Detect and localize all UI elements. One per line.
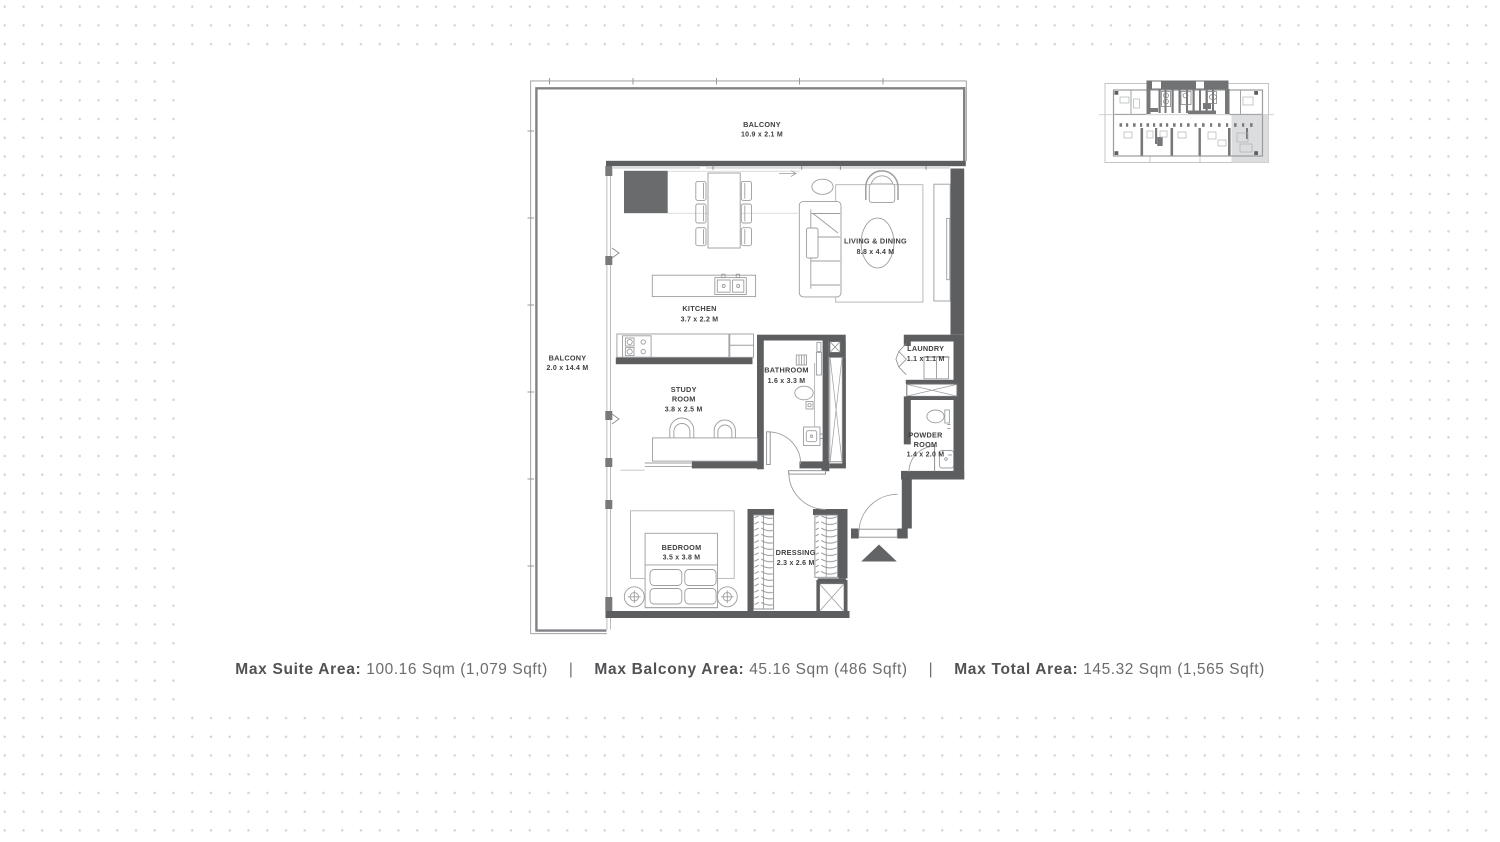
svg-text:BALCONY: BALCONY <box>549 354 587 363</box>
svg-text:ROOM: ROOM <box>914 440 938 449</box>
svg-text:8.8 x 4.4 M: 8.8 x 4.4 M <box>857 249 895 256</box>
svg-text:3.8 x 2.5 M: 3.8 x 2.5 M <box>665 406 703 413</box>
svg-text:1.6 x 3.3 M: 1.6 x 3.3 M <box>768 378 806 385</box>
svg-text:1.1 x 1.1 M: 1.1 x 1.1 M <box>907 356 945 363</box>
svg-text:LAUNDRY: LAUNDRY <box>907 344 944 353</box>
svg-text:STUDY: STUDY <box>671 385 697 394</box>
svg-text:3.7 x 2.2 M: 3.7 x 2.2 M <box>681 316 719 323</box>
svg-text:10.9 x 2.1 M: 10.9 x 2.1 M <box>741 132 783 139</box>
svg-text:BALCONY: BALCONY <box>743 120 781 129</box>
svg-text:1.4 x 2.0 M: 1.4 x 2.0 M <box>907 452 945 459</box>
svg-text:2.0 x 14.4 M: 2.0 x 14.4 M <box>547 365 589 372</box>
svg-text:BEDROOM: BEDROOM <box>662 543 702 552</box>
svg-text:BATHROOM: BATHROOM <box>764 366 808 375</box>
svg-text:DRESSING: DRESSING <box>776 548 816 557</box>
svg-text:2.3 x 2.6 M: 2.3 x 2.6 M <box>777 560 815 567</box>
svg-text:3.5 x 3.8 M: 3.5 x 3.8 M <box>663 555 701 562</box>
svg-text:POWDER: POWDER <box>908 431 943 440</box>
svg-text:LIVING & DINING: LIVING & DINING <box>844 237 907 246</box>
svg-text:ROOM: ROOM <box>672 395 696 404</box>
svg-text:KITCHEN: KITCHEN <box>682 304 716 313</box>
